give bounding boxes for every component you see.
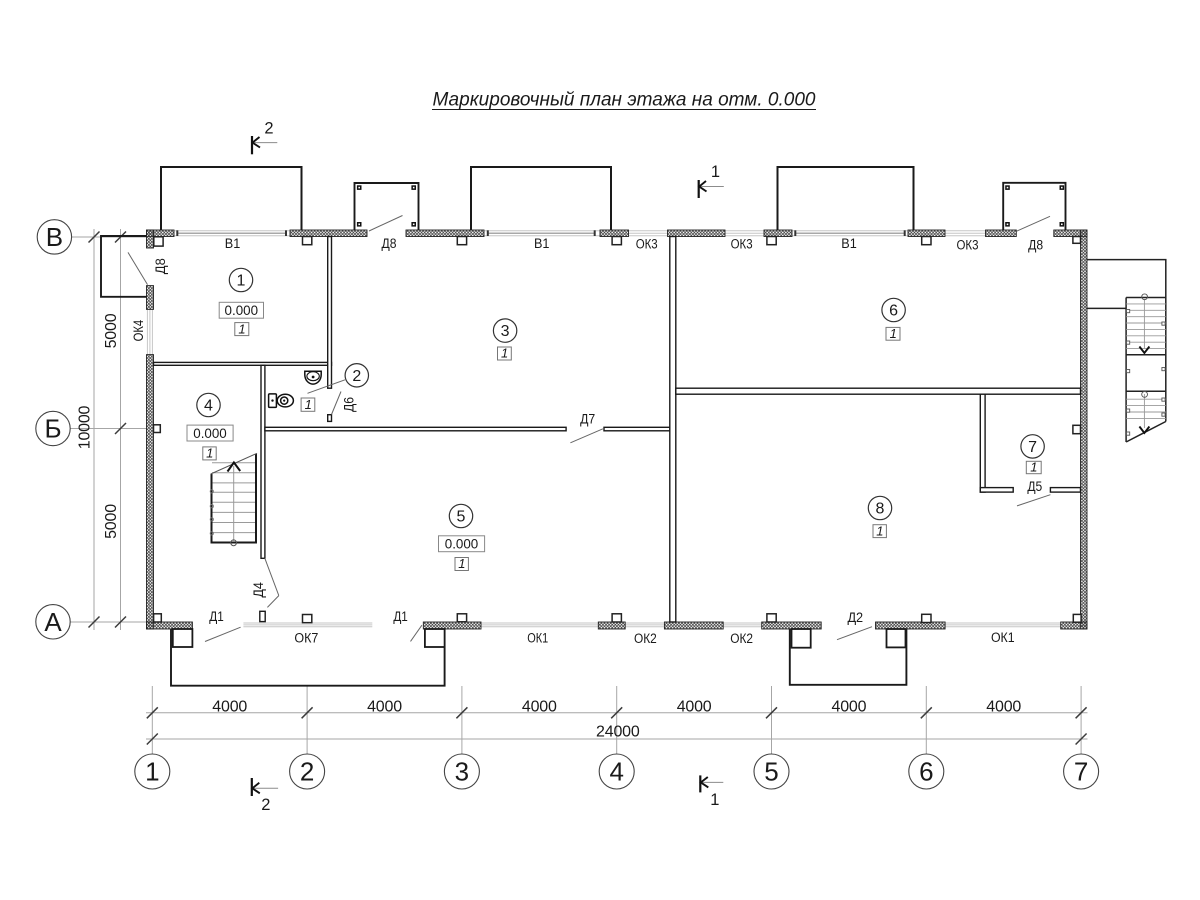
svg-text:5000: 5000 (103, 504, 120, 539)
svg-text:Маркировочный план этажа на от: Маркировочный план этажа на отм. 0.000 (433, 89, 816, 111)
svg-text:1: 1 (145, 757, 159, 787)
svg-text:А: А (44, 607, 62, 637)
svg-text:4000: 4000 (522, 699, 557, 716)
svg-text:1: 1 (890, 326, 897, 341)
svg-text:Д8: Д8 (382, 236, 397, 251)
svg-text:3: 3 (455, 757, 469, 787)
svg-text:10000: 10000 (77, 405, 94, 449)
svg-text:ОК2: ОК2 (634, 631, 657, 646)
svg-text:ОК1: ОК1 (991, 630, 1015, 645)
svg-text:4000: 4000 (212, 699, 247, 716)
svg-text:Д4: Д4 (251, 582, 266, 598)
svg-text:Д7: Д7 (580, 411, 595, 426)
svg-text:ОК2: ОК2 (730, 631, 753, 646)
svg-text:ОК3: ОК3 (957, 238, 979, 253)
svg-text:8: 8 (876, 501, 885, 518)
svg-text:1: 1 (711, 163, 720, 181)
svg-text:Д8: Д8 (153, 258, 168, 274)
svg-text:6: 6 (919, 757, 933, 787)
svg-text:В1: В1 (225, 236, 241, 251)
svg-text:1: 1 (305, 397, 312, 412)
svg-text:1: 1 (1030, 459, 1037, 474)
svg-text:Б: Б (44, 414, 61, 444)
svg-text:В1: В1 (841, 236, 857, 251)
svg-text:Д5: Д5 (1027, 479, 1042, 494)
svg-text:4: 4 (609, 757, 623, 787)
svg-text:ОК4: ОК4 (131, 319, 146, 341)
svg-text:4000: 4000 (986, 699, 1021, 716)
svg-text:2: 2 (264, 120, 273, 138)
svg-text:1: 1 (458, 556, 465, 571)
svg-text:4000: 4000 (832, 699, 867, 716)
svg-text:0.000: 0.000 (193, 425, 227, 441)
svg-text:2: 2 (352, 368, 361, 385)
svg-text:2: 2 (261, 796, 270, 814)
svg-text:1: 1 (501, 346, 508, 361)
svg-text:1: 1 (206, 446, 213, 461)
svg-text:1: 1 (710, 791, 719, 809)
svg-text:В: В (46, 222, 63, 252)
svg-text:4: 4 (204, 398, 213, 415)
svg-text:4000: 4000 (367, 699, 402, 716)
svg-text:0.000: 0.000 (445, 536, 479, 552)
svg-text:2: 2 (300, 757, 314, 787)
svg-text:5: 5 (457, 509, 466, 526)
svg-text:3: 3 (501, 323, 510, 340)
svg-text:Д1: Д1 (209, 609, 224, 624)
svg-text:ОК3: ОК3 (731, 237, 753, 252)
svg-text:1: 1 (238, 321, 245, 336)
svg-text:0.000: 0.000 (225, 302, 259, 318)
svg-text:Д2: Д2 (847, 610, 863, 625)
svg-text:1: 1 (237, 273, 246, 290)
svg-text:Д8: Д8 (1028, 238, 1043, 253)
svg-text:Д1: Д1 (393, 609, 408, 624)
svg-text:5000: 5000 (103, 313, 120, 348)
svg-text:6: 6 (889, 303, 898, 320)
svg-text:В1: В1 (534, 236, 550, 251)
svg-text:ОК3: ОК3 (636, 237, 658, 252)
svg-text:7: 7 (1028, 439, 1037, 456)
svg-text:ОК7: ОК7 (294, 630, 318, 645)
svg-text:4000: 4000 (677, 699, 712, 716)
svg-text:5: 5 (764, 757, 778, 787)
svg-text:24000: 24000 (596, 724, 640, 741)
svg-text:7: 7 (1074, 757, 1088, 787)
svg-text:Д6: Д6 (342, 397, 357, 412)
svg-text:1: 1 (876, 523, 883, 538)
svg-text:ОК1: ОК1 (527, 630, 548, 645)
